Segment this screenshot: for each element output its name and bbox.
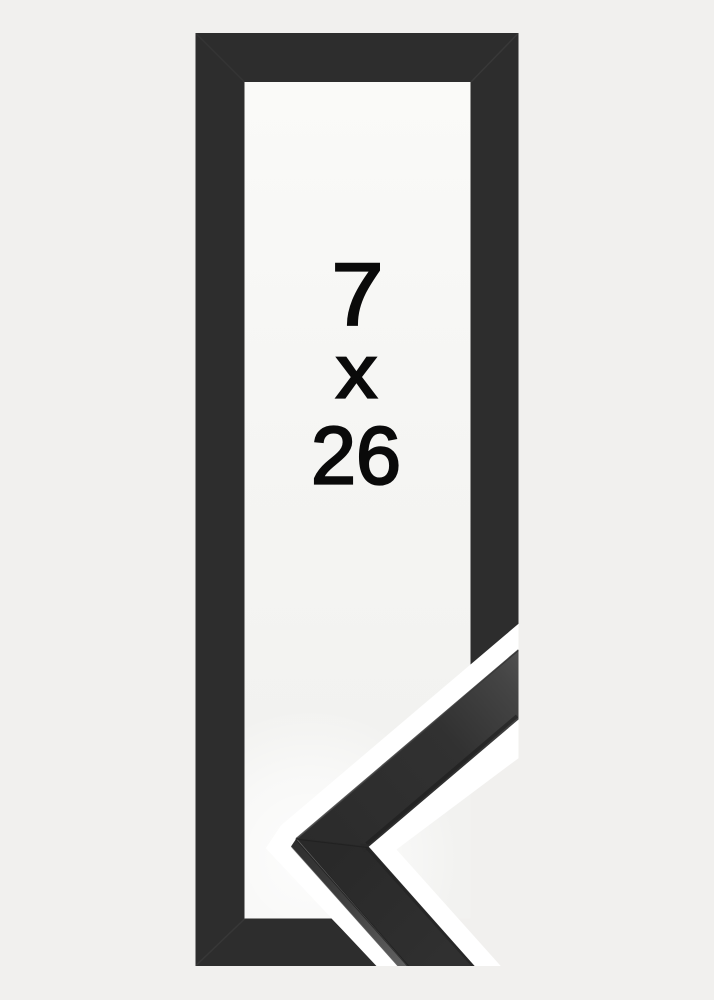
- svg-text:26: 26: [311, 411, 401, 502]
- svg-text:x: x: [336, 330, 377, 414]
- svg-text:7: 7: [332, 244, 384, 343]
